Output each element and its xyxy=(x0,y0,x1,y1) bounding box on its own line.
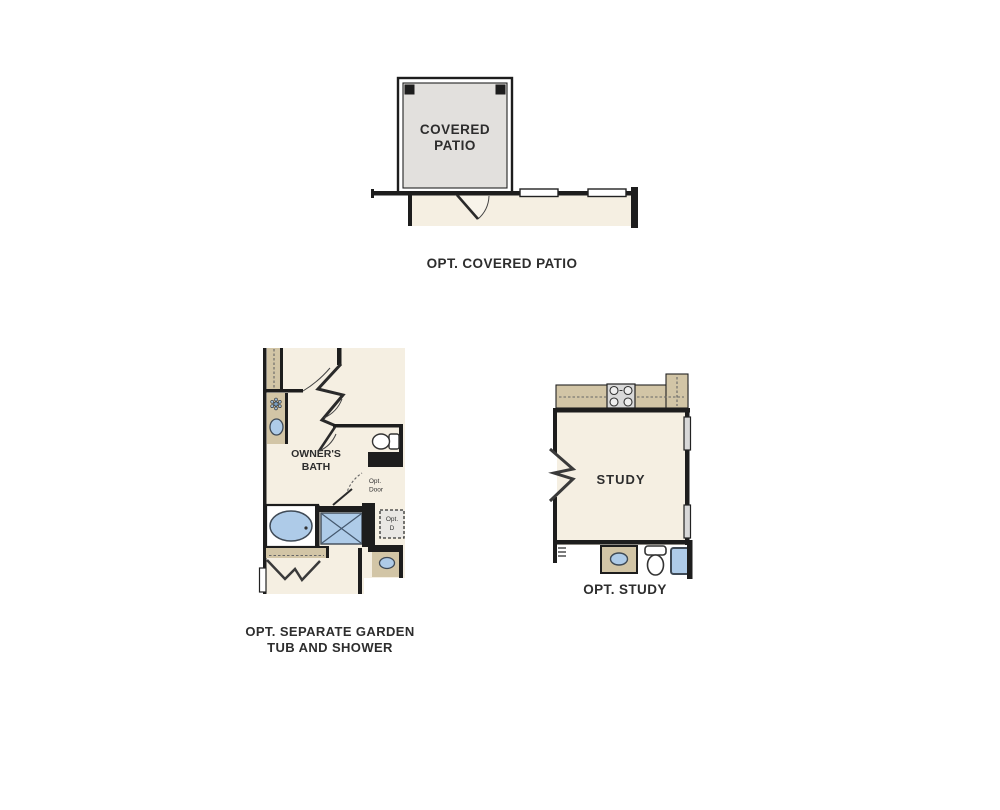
left-wall xyxy=(263,348,267,594)
vanity-counter xyxy=(267,393,288,444)
toilet-icon xyxy=(645,546,666,575)
opt-door-label-line1: Opt. xyxy=(369,478,381,485)
powder-bath-fixtures xyxy=(553,540,693,579)
window-symbol xyxy=(684,505,691,538)
house-interior xyxy=(412,195,631,226)
caption-bath-line2: TUB AND SHOWER xyxy=(230,640,430,656)
cooktop-icon xyxy=(607,384,635,408)
opt-d-label-line1: Opt. xyxy=(386,516,398,523)
caption-bath-line1: OPT. SEPARATE GARDEN xyxy=(230,624,430,640)
patio-room-label-line1: COVERED xyxy=(420,122,490,137)
kitchen-counter xyxy=(556,374,688,408)
window-symbol xyxy=(260,568,267,592)
opt-d-box: Opt. D xyxy=(380,510,404,538)
opt-d-label-line2: D xyxy=(390,525,395,532)
shower-icon xyxy=(671,548,689,574)
window-symbol xyxy=(520,189,558,197)
caption-covered-patio: OPT. COVERED PATIO xyxy=(352,256,652,272)
bath-room-label-line1: OWNER'S xyxy=(291,448,341,460)
wall-segment xyxy=(337,348,342,365)
covered-patio-room: COVERED PATIO xyxy=(398,78,512,193)
window-symbol xyxy=(588,189,626,197)
exterior-cutout xyxy=(364,578,406,595)
garden-tub xyxy=(266,505,320,547)
caption-study: OPT. STUDY xyxy=(545,582,705,598)
closet-strip xyxy=(267,348,283,391)
bath-room-label-line2: BATH xyxy=(302,461,330,473)
figure-owners-bath: OWNER'S BATH Opt. Door xyxy=(240,340,430,615)
window-symbol xyxy=(684,417,691,450)
patio-room-label-line2: PATIO xyxy=(434,138,476,153)
figure-covered-patio: COVERED PATIO xyxy=(360,65,660,240)
floor-plan-sheet: COVERED PATIO OPT. COVERED PATIO xyxy=(0,0,1000,810)
sink-icon xyxy=(270,419,283,435)
wall-segment xyxy=(263,389,303,393)
sink-icon xyxy=(611,553,628,565)
opt-door-label-line2: Door xyxy=(369,487,384,494)
column-icon xyxy=(496,85,506,95)
shelf-strip xyxy=(266,546,329,558)
column-icon xyxy=(405,85,415,95)
study-room-label: STUDY xyxy=(596,472,645,487)
toilet-icon xyxy=(373,434,400,449)
tub-icon xyxy=(270,511,312,541)
sink-icon xyxy=(380,558,395,569)
figure-study: STUDY xyxy=(545,365,710,605)
